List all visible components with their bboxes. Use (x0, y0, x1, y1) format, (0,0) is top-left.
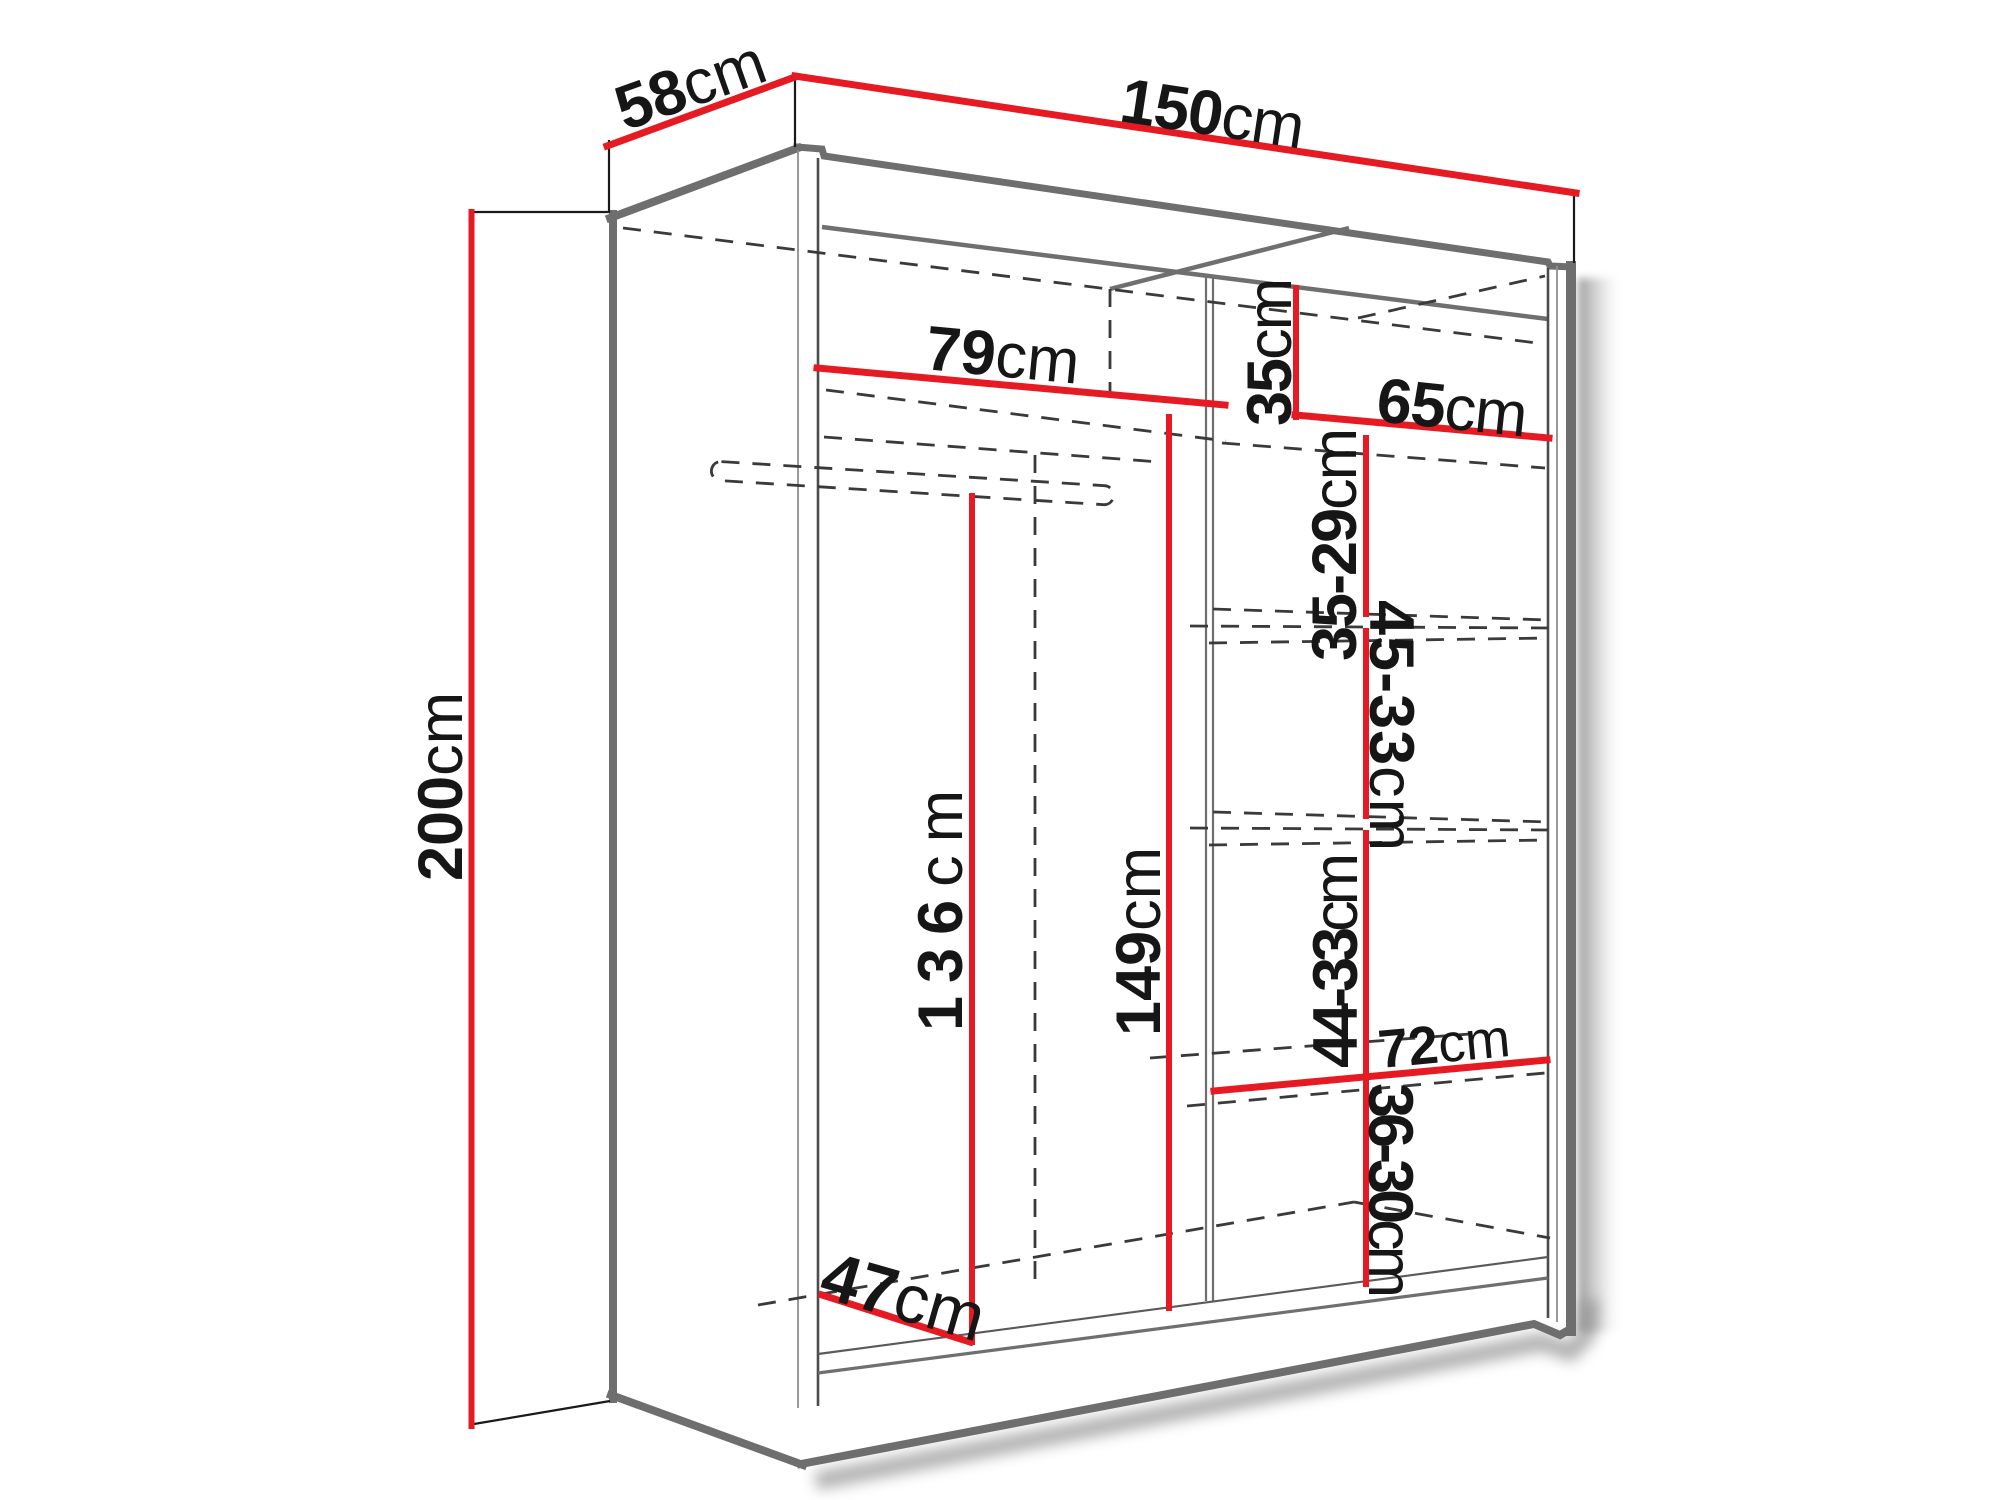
svg-text:72cm: 72cm (1376, 1008, 1513, 1080)
svg-text:200cm: 200cm (406, 692, 476, 881)
svg-text:136cm: 136cm (906, 777, 976, 1031)
svg-text:35cm: 35cm (1235, 280, 1305, 426)
svg-text:79cm: 79cm (923, 313, 1083, 397)
svg-text:44-33cm: 44-33cm (1301, 856, 1371, 1068)
svg-text:36-30cm: 36-30cm (1355, 1083, 1425, 1295)
svg-text:47cm: 47cm (813, 1237, 994, 1356)
svg-text:150cm: 150cm (1116, 66, 1309, 163)
svg-text:65cm: 65cm (1374, 365, 1531, 450)
svg-text:45-33cm: 45-33cm (1356, 600, 1426, 852)
svg-text:149cm: 149cm (1104, 847, 1174, 1036)
svg-text:58cm: 58cm (606, 27, 775, 144)
